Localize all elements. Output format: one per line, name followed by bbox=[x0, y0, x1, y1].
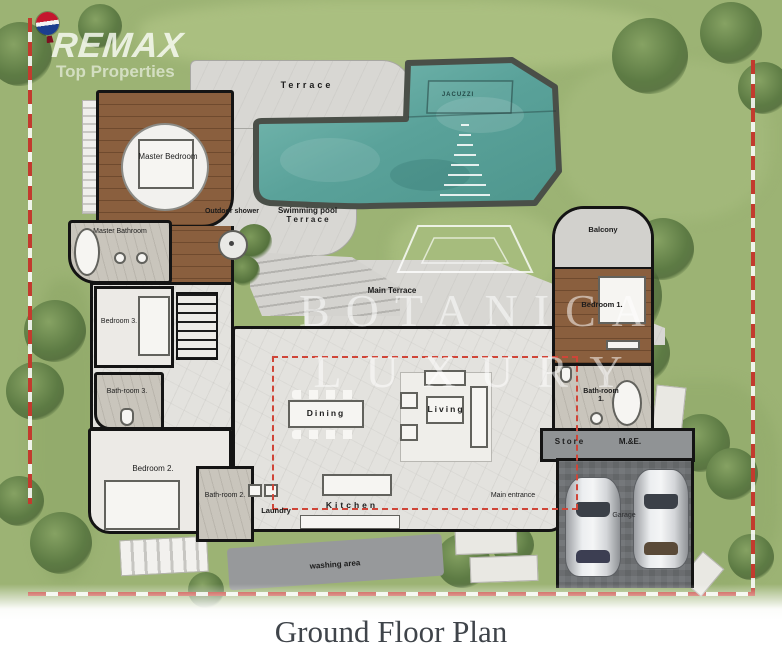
bathroom-2-label: Bath-room 2. bbox=[200, 492, 250, 500]
master-bathroom-label: Master Bathroom bbox=[92, 228, 148, 236]
bathroom-1-label: Bath-room 1. bbox=[580, 388, 622, 404]
bed-3 bbox=[138, 296, 170, 356]
bedroom-1-label: Bedroom 1. bbox=[572, 301, 632, 310]
pool-terrace-line2: T e r r a c e bbox=[250, 215, 365, 224]
pool-terrace-label: Swimming pool T e r r a c e bbox=[250, 206, 365, 224]
bathroom-3-label: Bath-room 3. bbox=[104, 388, 150, 396]
brand-name: REMAX bbox=[50, 26, 186, 66]
sink bbox=[114, 252, 126, 264]
main-terrace-label: Main Terrace bbox=[366, 286, 418, 295]
plan-title: Ground Floor Plan bbox=[0, 614, 782, 650]
tree bbox=[700, 2, 762, 64]
jacuzzi-label: JACUZZI bbox=[428, 92, 488, 99]
car-rear-window bbox=[644, 542, 678, 555]
master-bedroom-label: Master Bedroom bbox=[138, 152, 198, 161]
bush bbox=[230, 256, 260, 286]
outdoor-shower-dot bbox=[229, 241, 234, 246]
entry-slab bbox=[470, 555, 539, 583]
toilet bbox=[120, 408, 134, 426]
staircase bbox=[176, 292, 218, 360]
kitchen-label: Kitchen bbox=[310, 501, 394, 511]
kitchen-counter bbox=[300, 515, 400, 529]
tree bbox=[612, 18, 688, 94]
outdoor-shower-label: Outdoor shower bbox=[204, 208, 260, 216]
garage-label: Garage bbox=[600, 512, 648, 520]
bedroom-3-label: Bedroom 3. bbox=[96, 318, 142, 326]
tree bbox=[738, 62, 782, 114]
boundary-line-right bbox=[751, 60, 755, 594]
laundry-label: Laundry bbox=[250, 507, 302, 516]
tree bbox=[6, 362, 64, 420]
car-rear-window bbox=[576, 550, 610, 563]
dining-label: Dining bbox=[294, 409, 358, 419]
sink bbox=[590, 412, 603, 425]
living-label: Living bbox=[416, 405, 476, 415]
pool-terrace-line1: Swimming pool bbox=[250, 206, 365, 215]
boundary-line-left bbox=[28, 18, 32, 504]
bed-2 bbox=[104, 480, 180, 530]
me-label: M.&E. bbox=[608, 437, 652, 446]
brand-tagline: Top Properties bbox=[56, 62, 175, 82]
upper-floor-outline bbox=[272, 356, 578, 510]
swimming-pool bbox=[250, 55, 570, 215]
master-bed bbox=[138, 139, 194, 189]
balcony-label: Balcony bbox=[566, 226, 640, 235]
car-windshield bbox=[644, 494, 678, 509]
balcony bbox=[555, 209, 651, 269]
tree bbox=[30, 512, 92, 574]
floor-plan-canvas: Terrace JACUZZI Swimming pool T e r r a … bbox=[0, 0, 782, 662]
bedroom-2-label: Bedroom 2. bbox=[118, 464, 188, 473]
store-label: Store bbox=[546, 437, 594, 446]
washer bbox=[248, 484, 262, 497]
main-entrance-label: Main entrance bbox=[488, 492, 538, 500]
bathroom-2 bbox=[196, 466, 254, 542]
bench-1 bbox=[606, 340, 640, 350]
terrace-label: Terrace bbox=[262, 80, 352, 90]
sunken-lawn-outline bbox=[390, 218, 540, 280]
tree bbox=[24, 300, 86, 362]
sink bbox=[136, 252, 148, 264]
